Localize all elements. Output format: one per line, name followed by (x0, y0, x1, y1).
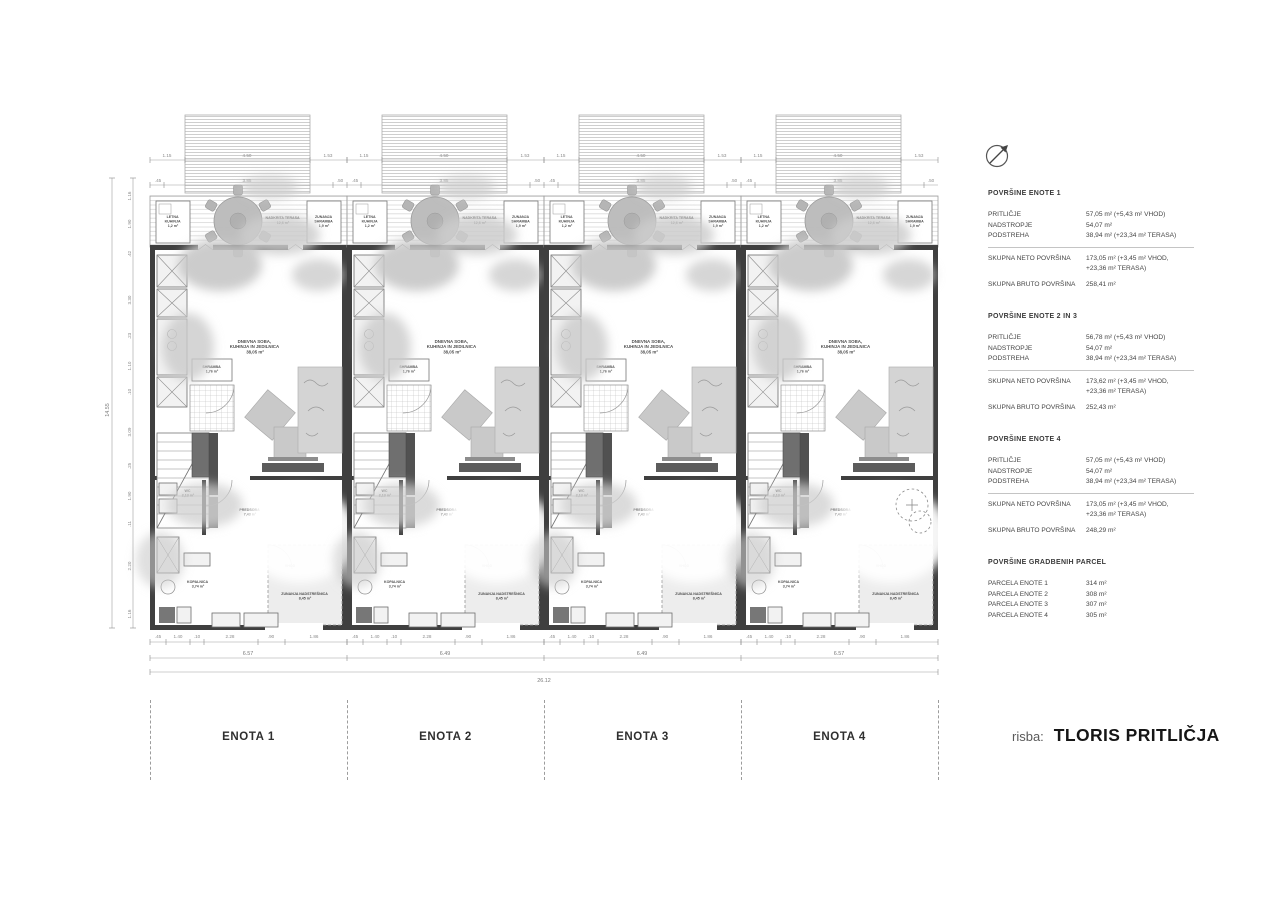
legend-row: PRITLIČJE57,05 m² (+5,43 m² VHOD) (988, 456, 1204, 467)
legend-row-label: NADSTROPJE (988, 221, 1086, 232)
north-arrow-icon (987, 145, 1009, 167)
dim-label: 1.10 (127, 361, 132, 370)
legend-row-value: 38,94 m² (+23,34 m² TERASA) (1086, 231, 1204, 242)
legend-row: PARCELA ENOTE 3307 m² (988, 600, 1204, 611)
legend-row-label: NADSTROPJE (988, 344, 1086, 355)
legend-row-value: 173,62 m² (+3,45 m² VHOD,+23,36 m² TERAS… (1086, 377, 1204, 398)
legend-row: PODSTREHA38,94 m² (+23,34 m² TERASA) (988, 477, 1204, 488)
legend-row-label: SKUPNA NETO POVRŠINA (988, 377, 1086, 398)
legend-row: NADSTROPJE54,07 m² (988, 467, 1204, 478)
unit-label-1: ENOTA 1 (150, 731, 347, 743)
svg-text:6.49: 6.49 (637, 651, 648, 657)
dim-label: .23 (127, 332, 132, 339)
dimension-totals-bottom: 6.57 6.49 6.49 6.57 26.12 (150, 651, 938, 684)
floorplan-sheet: 1.15 4.50 1.53 .45 3.85 .50 (0, 0, 1280, 905)
unit-1-plan (136, 115, 358, 645)
legend-row-label: PODSTREHA (988, 477, 1086, 488)
legend-row: SKUPNA BRUTO POVRŠINA252,43 m² (988, 403, 1204, 414)
legend-row-label: PODSTREHA (988, 354, 1086, 365)
legend-row-label: PARCELA ENOTE 2 (988, 590, 1086, 601)
legend-heading: POVRŠINE GRADBENIH PARCEL (988, 559, 1204, 566)
legend-row: SKUPNA NETO POVRŠINA173,62 m² (+3,45 m² … (988, 377, 1204, 398)
svg-text:6.49: 6.49 (440, 651, 451, 657)
legend-row-label: SKUPNA BRUTO POVRŠINA (988, 280, 1086, 291)
legend-row-value: 305 m² (1086, 611, 1204, 622)
legend-heading: POVRŠINE ENOTE 2 IN 3 (988, 313, 1204, 320)
area-legend: POVRŠINE ENOTE 1PRITLIČJE57,05 m² (+5,43… (988, 190, 1204, 644)
legend-row-value: 248,29 m² (1086, 526, 1204, 537)
legend-row: NADSTROPJE54,07 m² (988, 221, 1204, 232)
legend-heading: POVRŠINE ENOTE 1 (988, 190, 1204, 197)
legend-row-label: NADSTROPJE (988, 467, 1086, 478)
legend-heading: POVRŠINE ENOTE 4 (988, 436, 1204, 443)
dim-label: .25 (127, 462, 132, 469)
legend-row-label: SKUPNA BRUTO POVRŠINA (988, 526, 1086, 537)
legend-row-label: PRITLIČJE (988, 333, 1086, 344)
legend-row-value: 38,94 m² (+23,34 m² TERASA) (1086, 354, 1204, 365)
legend-row: SKUPNA NETO POVRŠINA173,05 m² (+3,45 m² … (988, 500, 1204, 521)
legend-row-label: PARCELA ENOTE 3 (988, 600, 1086, 611)
legend-row-value: 57,05 m² (+5,43 m² VHOD) (1086, 456, 1204, 467)
dim-label: 2.20 (127, 561, 132, 570)
dim-label: 1.16 (127, 609, 132, 618)
legend-row: PRITLIČJE56,78 m² (+5,43 m² VHOD) (988, 333, 1204, 344)
title-block: risba: TLORIS PRITLIČJA (1012, 725, 1220, 746)
svg-text:26.12: 26.12 (537, 678, 551, 684)
legend-row: PARCELA ENOTE 1314 m² (988, 579, 1204, 590)
dim-label: 1.90 (127, 491, 132, 500)
legend-row-value: 258,41 m² (1086, 280, 1204, 291)
legend-separator (988, 247, 1194, 248)
legend-row-label: SKUPNA BRUTO POVRŠINA (988, 403, 1086, 414)
legend-row-value: 173,05 m² (+3,45 m² VHOD,+23,36 m² TERAS… (1086, 500, 1204, 521)
dim-label: 1.16 (127, 191, 132, 200)
legend-block: POVRŠINE ENOTE 1PRITLIČJE57,05 m² (+5,43… (988, 190, 1204, 290)
legend-row: SKUPNA NETO POVRŠINA173,05 m² (+3,45 m² … (988, 254, 1204, 275)
legend-row-value: 57,05 m² (+5,43 m² VHOD) (1086, 210, 1204, 221)
unit-2-plan (333, 115, 555, 645)
dim-label: .11 (127, 521, 132, 527)
dim-label: .42 (127, 250, 132, 257)
legend-row-label: PARCELA ENOTE 1 (988, 579, 1086, 590)
legend-row: SKUPNA BRUTO POVRŠINA248,29 m² (988, 526, 1204, 537)
legend-row-label: PRITLIČJE (988, 456, 1086, 467)
legend-row-value: 308 m² (1086, 590, 1204, 601)
unit-3-plan (530, 115, 752, 645)
legend-row-value: 54,07 m² (1086, 221, 1204, 232)
legend-row-value: 307 m² (1086, 600, 1204, 611)
drawing-title: TLORIS PRITLIČJA (1054, 725, 1220, 746)
unit-separator (938, 700, 939, 780)
legend-row-label: PARCELA ENOTE 4 (988, 611, 1086, 622)
legend-row-value: 54,07 m² (1086, 344, 1204, 355)
legend-row-value: 314 m² (1086, 579, 1204, 590)
legend-row: SKUPNA BRUTO POVRŠINA258,41 m² (988, 280, 1204, 291)
unit-4-plan (727, 115, 949, 645)
legend-block-parcels: POVRŠINE GRADBENIH PARCELPARCELA ENOTE 1… (988, 559, 1204, 621)
legend-row: NADSTROPJE54,07 m² (988, 344, 1204, 355)
legend-row: PODSTREHA38,94 m² (+23,34 m² TERASA) (988, 354, 1204, 365)
drawing-label-prefix: risba: (1012, 729, 1044, 744)
legend-row: PODSTREHA38,94 m² (+23,34 m² TERASA) (988, 231, 1204, 242)
unit-label-4: ENOTA 4 (741, 731, 938, 743)
unit-label-3: ENOTA 3 (544, 731, 741, 743)
svg-text:6.57: 6.57 (834, 651, 845, 657)
legend-row: PARCELA ENOTE 4305 m² (988, 611, 1204, 622)
legend-row: PARCELA ENOTE 2308 m² (988, 590, 1204, 601)
legend-row-label: PRITLIČJE (988, 210, 1086, 221)
legend-row-value: 56,78 m² (+5,43 m² VHOD) (1086, 333, 1204, 344)
legend-row-label: PODSTREHA (988, 231, 1086, 242)
legend-row-value: 173,05 m² (+3,45 m² VHOD,+23,36 m² TERAS… (1086, 254, 1204, 275)
unit-label-2: ENOTA 2 (347, 731, 544, 743)
dim-label: .10 (127, 388, 132, 395)
dim-label: 3.09 (127, 427, 132, 436)
legend-row-value: 38,94 m² (+23,34 m² TERASA) (1086, 477, 1204, 488)
legend-row-label: SKUPNA NETO POVRŠINA (988, 254, 1086, 275)
legend-row-value: 252,43 m² (1086, 403, 1204, 414)
dim-label: 1.90 (127, 219, 132, 228)
legend-row-label: SKUPNA NETO POVRŠINA (988, 500, 1086, 521)
legend-row: PRITLIČJE57,05 m² (+5,43 m² VHOD) (988, 210, 1204, 221)
legend-separator (988, 493, 1194, 494)
dimension-column-left: 1.161.90.423.30.231.10.103.09.251.90.112… (105, 178, 136, 628)
legend-row-value: 54,07 m² (1086, 467, 1204, 478)
svg-text:6.57: 6.57 (243, 651, 254, 657)
dim-label: 3.30 (127, 295, 132, 304)
legend-separator (988, 370, 1194, 371)
dim-label-overall: 14.55 (105, 403, 111, 417)
legend-block: POVRŠINE ENOTE 2 IN 3PRITLIČJE56,78 m² (… (988, 313, 1204, 413)
legend-block: POVRŠINE ENOTE 4PRITLIČJE57,05 m² (+5,43… (988, 436, 1204, 536)
